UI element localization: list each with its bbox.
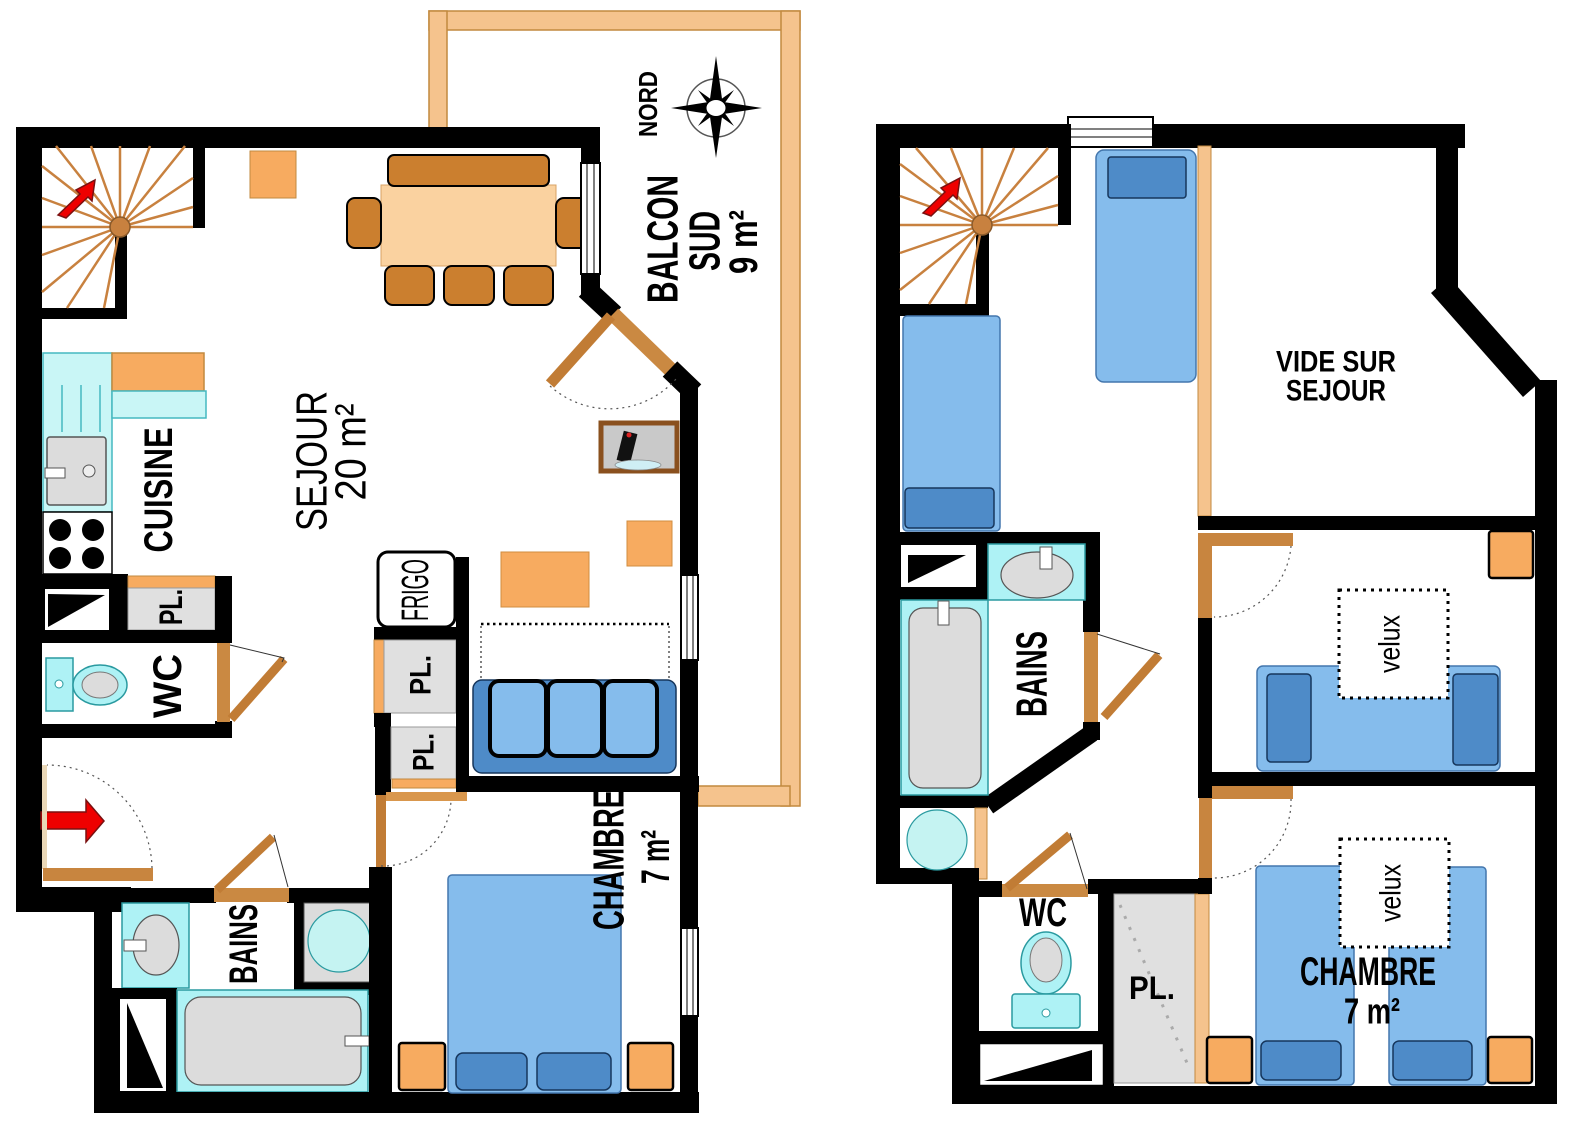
svg-text:velux: velux xyxy=(1374,615,1407,673)
svg-text:WC: WC xyxy=(1019,891,1067,935)
svg-text:20 m²: 20 m² xyxy=(327,404,376,501)
svg-text:SEJOUR: SEJOUR xyxy=(1286,375,1386,408)
svg-text:CHAMBRE: CHAMBRE xyxy=(585,790,634,930)
svg-text:PL.: PL. xyxy=(1129,970,1175,1006)
svg-text:7 m²: 7 m² xyxy=(634,830,678,884)
svg-text:7 m²: 7 m² xyxy=(1344,991,1400,1032)
svg-text:PL.: PL. xyxy=(153,589,189,625)
svg-text:BAINS: BAINS xyxy=(222,904,266,984)
svg-text:9 m²: 9 m² xyxy=(722,210,766,274)
svg-text:velux: velux xyxy=(1375,864,1408,922)
svg-text:NORD: NORD xyxy=(633,71,663,137)
svg-text:WC: WC xyxy=(146,654,190,718)
svg-text:FRIGO: FRIGO xyxy=(395,559,437,621)
svg-text:BAINS: BAINS xyxy=(1008,631,1057,717)
svg-text:CUISINE: CUISINE xyxy=(137,428,181,553)
svg-text:PL.: PL. xyxy=(408,733,441,771)
svg-text:CHAMBRE: CHAMBRE xyxy=(1300,950,1436,994)
svg-text:PL.: PL. xyxy=(405,655,438,695)
